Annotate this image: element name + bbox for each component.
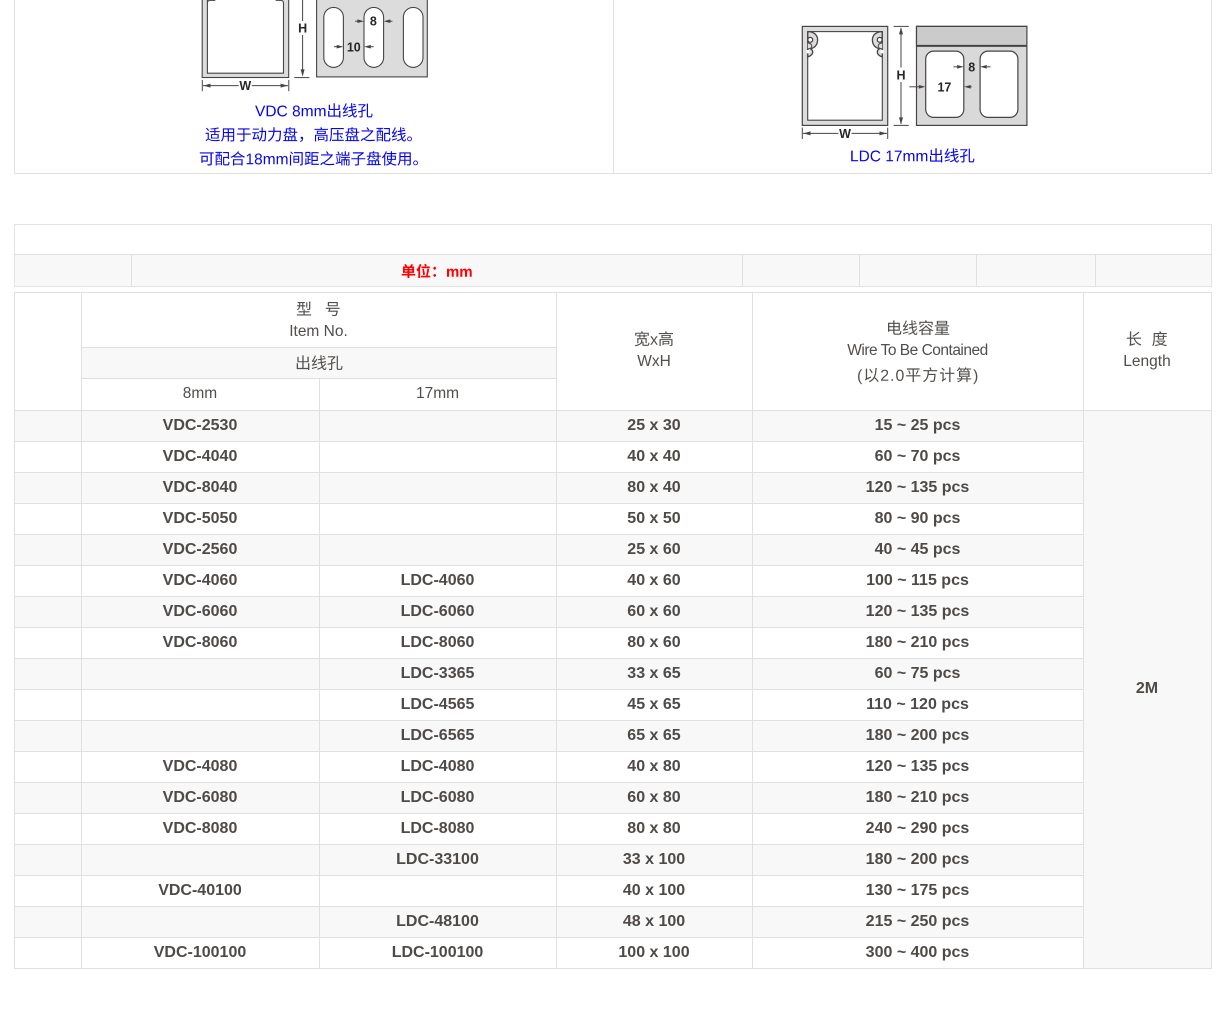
svg-text:W: W — [239, 79, 251, 93]
svg-text:H: H — [298, 22, 307, 36]
svg-text:8: 8 — [370, 15, 377, 29]
svg-text:10: 10 — [347, 40, 361, 54]
svg-text:H: H — [896, 68, 905, 82]
svg-text:W: W — [839, 127, 851, 141]
svg-text:8: 8 — [968, 60, 975, 74]
svg-text:17: 17 — [937, 80, 951, 94]
